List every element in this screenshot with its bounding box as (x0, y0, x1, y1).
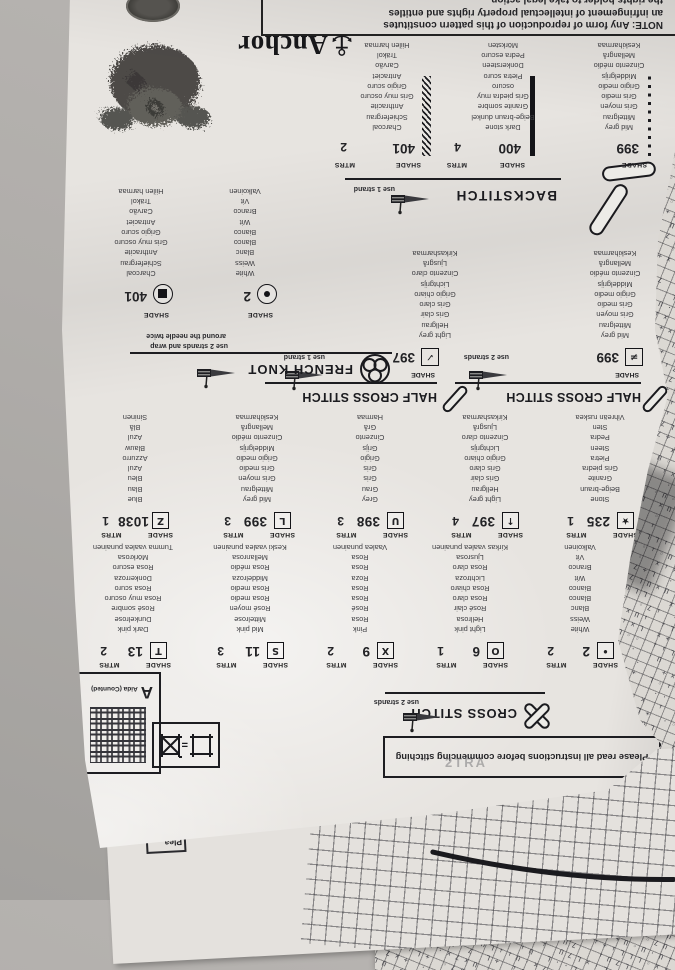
shade-name: Rosa claro (418, 562, 522, 572)
read-instructions-banner: Please read all instructions before comm… (383, 736, 661, 778)
shade-name: Rosa medio (198, 583, 302, 593)
shade-name: Azul (83, 463, 187, 473)
shade-name: Keskiharmaa (563, 39, 675, 49)
shade-name: Weiss (189, 257, 301, 267)
shade-name: Carvão (331, 60, 443, 70)
shade-name: Antraciet (85, 216, 197, 226)
shade-name: Rosa (308, 593, 412, 603)
aida-fabric-swatch-icon (90, 707, 146, 763)
shade-name: oscuro (447, 81, 559, 91)
stitch-symbol-401 (153, 284, 173, 304)
key-column-398: SHADEMTRSU3983GreyGrauGrisGrisGrigioGrij… (318, 411, 422, 538)
needle-icon (195, 366, 235, 380)
half-cross-icon (441, 385, 469, 413)
shade-name: Mittelrose (198, 613, 302, 623)
shade-name: Anthracite (85, 247, 197, 257)
shade-number: 235 (587, 514, 610, 529)
shade-name: Mid grey (563, 122, 675, 132)
shade-mtrs-labels: SHADEMTRS (81, 661, 185, 668)
header-rule (130, 352, 392, 354)
mtrs-value: 3 (224, 514, 231, 528)
mtrs-value: 3 (217, 644, 224, 658)
french-knot-title: FRENCH KNOT (247, 362, 353, 377)
shade-name: Rosa médio (198, 562, 302, 572)
shade-name: Gris moyen (565, 309, 665, 319)
shade-name: Harmaa (318, 411, 422, 421)
shade-name: Rosé sombre (81, 603, 185, 613)
shade-names: Mid greyMittelgrauGris moyenGris medioGr… (565, 247, 665, 340)
shade-number: 400 (498, 141, 521, 156)
shade-row: U3983 (318, 507, 422, 529)
shade-name: Mid pink (198, 624, 302, 634)
mtrs-label: MTRS (546, 661, 566, 668)
stitch-symbol-399: L (274, 512, 291, 529)
shade-name: Roza (308, 572, 412, 582)
header-rule (345, 178, 561, 180)
backstitch-strands: use 1 strand (354, 185, 395, 192)
shade-name: Blanco (528, 593, 632, 603)
shade-name: Stone (548, 494, 652, 504)
shade-mtrs-labels: SHADEMTRS (198, 661, 302, 668)
shade-name: Pedra escuro (447, 50, 559, 60)
shade-name: Weiss (528, 613, 632, 623)
shade-names: WhiteWeissBlancBlancoBiancoWitBrancoVitV… (189, 185, 301, 278)
shade-name: Blue (83, 494, 187, 504)
shade-name: Steen (548, 442, 652, 452)
shade-name: Träkol (85, 196, 197, 206)
needle-icon (467, 368, 507, 382)
anchor-icon: ⚓ (330, 29, 354, 60)
shade-number: 9 (362, 644, 370, 659)
shade-name: Mittelgrau (205, 483, 309, 493)
fabric-name: Aida (Counted) (91, 685, 138, 692)
shade-name: Rosa (308, 562, 412, 572)
stitch-symbol-1038: Z (152, 512, 169, 529)
key-column-397: SHADEMTRS↑3974Light greyHellgrauGris cla… (433, 411, 537, 538)
koala-design-photo (85, 39, 223, 137)
shade-name: Schiefergrau (331, 111, 443, 121)
key-column-2: SHADEMTRS•22WhiteWeissBlancBlancoBiancoW… (528, 541, 632, 668)
shade-number: 399 (616, 141, 639, 156)
shade-name: Antraciet (331, 70, 443, 80)
square-equals-cross-icon: = (158, 730, 214, 760)
shade-number: 397 (392, 350, 415, 365)
mtrs-label: MTRS (566, 531, 586, 538)
shade-name: Grigio chiaro (385, 289, 485, 299)
needle-icon (195, 361, 235, 380)
shade-name: Beige-braun dunkel (447, 111, 559, 121)
shade-name: Azul (83, 432, 187, 442)
shade-name: Vaalea punainen (308, 541, 412, 551)
shade-name: Valkoinen (528, 541, 632, 551)
stitch-symbol-11: S (267, 642, 284, 659)
shade-name: Rosa scuro (81, 583, 185, 593)
shade-name: Wit (189, 216, 301, 226)
shade-names: Light greyHellgrauGris clairGris claroGr… (433, 411, 537, 504)
shade-name: Grigio scuro (331, 81, 443, 91)
shade-name: Rosa (308, 552, 412, 562)
shade-name: White (528, 624, 632, 634)
shade-name: Gris muy oscuro (85, 237, 197, 247)
stitch-symbol-397: ✓ (421, 348, 439, 366)
shade-name: Azzurro (83, 453, 187, 463)
shade-name: Wit (528, 572, 632, 582)
shade-name: Grigio (318, 453, 422, 463)
mtrs-label: MTRS (326, 661, 346, 668)
shade-name: Blanco (189, 237, 301, 247)
shade-mtrs-labels: SHADEMTRS (308, 661, 412, 668)
stitch-symbol-2: • (597, 642, 614, 659)
shade-name: Rosa (308, 613, 412, 623)
shade-name: Blanc (189, 247, 301, 257)
shade-number: 2 (243, 289, 251, 304)
shade-label: SHADE (148, 531, 173, 538)
stitch-symbol-398: U (387, 512, 404, 529)
shade-name: Gris (318, 463, 422, 473)
shade-number: 399 (244, 514, 267, 529)
shade-mtrs-labels: SHADEMTRS (418, 661, 522, 668)
mtrs-label: MTRS (436, 661, 456, 668)
shade-row: ↑3974 (433, 507, 537, 529)
shade-name: Tumma vaalea punainen (81, 541, 185, 551)
shade-name: Gris clair (385, 309, 485, 319)
stitch-symbol-6: O (487, 642, 504, 659)
shade-names: Dark pinkDunkelroseRosé sombreRosa muy o… (81, 541, 185, 634)
shade-name: Middelgrijs (563, 70, 675, 80)
cross-stitch-icon (519, 698, 555, 734)
shade-number: 6 (472, 644, 480, 659)
stitch-symbol-13: T (150, 642, 167, 659)
shade-number: 398 (357, 514, 380, 529)
shade-name: Gris moyen (563, 101, 675, 111)
shade-number: 2 (582, 644, 590, 659)
mtrs-value: 2 (340, 140, 347, 154)
shade-name: Pink (308, 624, 412, 634)
shade-number: 401 (124, 289, 147, 304)
shade-name: Mid grey (565, 330, 665, 340)
mtrs-value: 1 (437, 644, 444, 658)
key-column-11: SHADEMTRSS113Mid pinkMittelroseRosé moye… (198, 541, 302, 668)
shade-name: Bleu (83, 473, 187, 483)
shade-name: Schiefergrau (85, 257, 197, 267)
mtrs-label: MTRS (223, 531, 243, 538)
fabric-label: A Aida (Counted) (81, 682, 153, 702)
shade-name: Rosa (308, 583, 412, 593)
shade-name: Kirkas vaalea punainen (418, 541, 522, 551)
shade-label: SHADE (622, 161, 647, 168)
shade-name: Granite (548, 473, 652, 483)
mtrs-label: MTRS (335, 161, 355, 168)
needle-icon (401, 705, 441, 724)
shade-name: Gris medio (205, 463, 309, 473)
key-column-6: SHADEMTRSO61Light pinkHellrosaRosé clair… (418, 541, 522, 668)
shade-mtrs-labels: SHADEMTRS (205, 531, 309, 538)
french-knot-strands-2: around the needle twice (146, 332, 226, 339)
shade-name: Rosé (308, 603, 412, 613)
shade-label: SHADE (498, 531, 523, 538)
shade-label: SHADE (270, 531, 295, 538)
shade-name: Grigio medio (563, 81, 675, 91)
shade-row: •22 (528, 637, 632, 659)
shade-name: Mellangrå (205, 422, 309, 432)
shade-name: Mörkrosa (81, 552, 185, 562)
shade-row: S113 (198, 637, 302, 659)
shade-number: 1038 (118, 514, 149, 529)
backstitch-sample-icon (581, 156, 661, 242)
shade-label: SHADE (593, 661, 618, 668)
shade-label: SHADE (383, 531, 408, 538)
shade-name: Grau (318, 483, 422, 493)
needle-icon (389, 192, 429, 206)
note-line: an infringement of intellectual property… (263, 5, 663, 17)
shade-name: Bianco (528, 583, 632, 593)
shade-names: WhiteWeissBlancBlancoBiancoWitBrancoVitV… (528, 541, 632, 634)
backstitch-title: BACKSTITCH (455, 188, 557, 203)
shade-name: Keski vaalea punainen (198, 541, 302, 551)
shade-name: Blanc (528, 603, 632, 613)
shade-name: Middelgrijs (565, 278, 665, 288)
shade-name: Beige-braun (548, 483, 652, 493)
header-rule (455, 382, 641, 384)
shade-name: Rosa escuro (81, 562, 185, 572)
shade-name: Gris medio (563, 91, 675, 101)
shade-name: Grigio medio (205, 453, 309, 463)
mtrs-label: MTRS (216, 661, 236, 668)
shade-name: Blau (83, 483, 187, 493)
shade-name: Dark pink (81, 624, 185, 634)
shade-name: Valkoinen (189, 185, 301, 195)
shade-row: ★2351 (548, 507, 652, 529)
shade-name: Light grey (433, 494, 537, 504)
shade-name: Grey (318, 494, 422, 504)
shade-names: Light pinkHellrosaRosé clairRosa claroRo… (418, 541, 522, 634)
banner-text: Please read all instructions before comm… (396, 752, 649, 762)
mtrs-label: MTRS (101, 531, 121, 538)
shade-name: Light pink (418, 624, 522, 634)
mtrs-value: 4 (454, 140, 461, 154)
stitch-symbol-399: ≠ (625, 348, 643, 366)
shade-name: Pietra (548, 453, 652, 463)
shade-name: Dunkelrose (81, 613, 185, 623)
fabric-box: A Aida (Counted) (75, 672, 161, 774)
shade-name: Sininen (83, 411, 187, 421)
shade-name: Sten (548, 422, 652, 432)
half-cross-title-2: HALF CROSS STITCH (302, 390, 437, 404)
shade-name: Cinzento médio (563, 60, 675, 70)
shade-mtrs-labels: SHADEMTRS (318, 531, 422, 538)
shade-name: Mid grey (205, 494, 309, 504)
shade-name: Light grey (385, 330, 485, 340)
shade-row: X92 (308, 637, 412, 659)
shade-name: Cinzento claro (433, 432, 537, 442)
shade-names: Light greyHellgrauGris clairGris claroGr… (385, 247, 485, 340)
half-cross-strands-1: use 2 strands (464, 353, 509, 360)
shade-name: Lichtroza (418, 572, 522, 582)
shade-name: Gris muy oscuro (331, 91, 443, 101)
photo-scene: U+◦7◦·↓◦+U◦ Lx+ U↓ x xU◦x LUx7↓L7Lxx+ 7+… (0, 0, 675, 900)
shade-names: Dark stoneBeige-braun dunkelGranite somb… (447, 39, 559, 132)
shade-name: White (189, 268, 301, 278)
shade-row: O61 (418, 637, 522, 659)
svg-text:=: = (182, 738, 188, 750)
needle-icon (389, 187, 429, 206)
shade-name: Mittelgrau (563, 111, 675, 121)
shade-name: Rosa muy oscuro (81, 593, 185, 603)
shade-name: Mellangrå (565, 258, 665, 268)
brand-name: Anchor (238, 29, 328, 60)
shade-name: Cinzento médio (205, 432, 309, 442)
shade-name: Gris piedra (548, 463, 652, 473)
shade-names: PinkRosaRoséRosaRosaRozaRosaRosaVaalea p… (308, 541, 412, 634)
shade-name: Mörksten (447, 39, 559, 49)
mtrs-label: MTRS (451, 531, 471, 538)
shade-name: Charcoal (331, 122, 443, 132)
mtrs-value: 2 (327, 644, 334, 658)
shade-row: T132 (81, 637, 185, 659)
print-bleed-text: 2TRA (445, 755, 487, 770)
shade-name: Ljusgrå (433, 422, 537, 432)
mtrs-label: MTRS (99, 661, 119, 668)
stitch-symbol-9: X (377, 642, 394, 659)
shade-name: Cinzento claro (385, 268, 485, 278)
shade-names: Mid pinkMittelroseRosé moyenRosa medioRo… (198, 541, 302, 634)
shade-name: Mellangrå (563, 50, 675, 60)
shade-name: Blå (83, 422, 187, 432)
stitch-legend: = (152, 722, 220, 768)
shade-name: Anthracite (331, 101, 443, 111)
shade-row: L3993 (205, 507, 309, 529)
shade-label: SHADE (396, 161, 421, 168)
shade-name: Hiilen harmaa (85, 185, 197, 195)
shade-number: 399 (596, 350, 619, 365)
shade-name: Gris piedra muy (447, 91, 559, 101)
shade-name: Grå (318, 422, 422, 432)
shade-label: SHADE (263, 661, 288, 668)
shade-name: Cinzento médio (565, 268, 665, 278)
shade-label: SHADE (483, 661, 508, 668)
header-rule (265, 382, 437, 384)
half-cross-strands-2: use 1 strand (284, 353, 325, 360)
key-column-9: SHADEMTRSX92PinkRosaRoséRosaRosaRozaRosa… (308, 541, 412, 668)
shade-name: Rosa claro (418, 593, 522, 603)
symbol-inner (159, 290, 168, 299)
shade-name: Lichtgrijs (385, 278, 485, 288)
shade-name: Rosé clair (418, 603, 522, 613)
shade-name: Mellanrosa (198, 552, 302, 562)
shade-name: Rosa medio (198, 593, 302, 603)
shade-name: Bianco (189, 227, 301, 237)
shade-name: Keskiharmaa (205, 411, 309, 421)
shade-name: Ljusrosa (418, 552, 522, 562)
shade-name: Pedra (548, 432, 652, 442)
french-knot-icon (358, 352, 392, 386)
shade-names: StoneBeige-braunGraniteGris piedraPietra… (548, 411, 652, 504)
shade-name: Kirkasharmaa (385, 247, 485, 257)
shade-number: 11 (245, 644, 260, 659)
fabric-letter: A (141, 682, 153, 702)
shade-number: 397 (472, 514, 495, 529)
shade-name: Dark stone (447, 122, 559, 132)
shade-name: Vihreän ruskea (548, 411, 652, 421)
shade-label: SHADE (411, 371, 435, 378)
shade-name: Hellgrau (433, 483, 537, 493)
shade-names: GreyGrauGrisGrisGrigioGrijsCinzentoGråHa… (318, 411, 422, 504)
shade-label: SHADE (500, 161, 525, 168)
shade-name: Grigio scuro (85, 227, 197, 237)
shade-label: SHADE (373, 661, 398, 668)
needle-icon (467, 363, 507, 382)
oval-stamp (126, 0, 180, 22)
shade-name: Gris clair (433, 473, 537, 483)
mtrs-value: 1 (567, 514, 574, 528)
shade-label: SHADE (248, 311, 273, 318)
shade-name: Gris moyen (205, 473, 309, 483)
shade-name: Lichtgrijs (433, 442, 537, 452)
shade-name: Donkersteen (447, 60, 559, 70)
header-rule (385, 692, 545, 694)
shade-name: Blauw (83, 442, 187, 452)
shade-name: Vit (189, 196, 301, 206)
shade-name: Keskiharmaa (565, 247, 665, 257)
key-column-235: SHADEMTRS★2351StoneBeige-braunGraniteGri… (548, 411, 652, 538)
instruction-sheet: Please read all instructions before comm… (0, 0, 675, 900)
shade-name: Rosa chiaro (418, 583, 522, 593)
symbol-inner (264, 291, 270, 297)
mtrs-value: 2 (547, 644, 554, 658)
shade-names: Mid greyMittelgrauGris moyenGris medioGr… (205, 411, 309, 504)
shade-label: SHADE (146, 661, 171, 668)
brand-logo: ⚓ Anchor (238, 29, 354, 60)
shade-names: Mid greyMittelgrauGris moyenGris medioGr… (563, 39, 675, 132)
stitch-symbol-235: ★ (617, 512, 634, 529)
shade-name: Donkerroza (81, 572, 185, 582)
shade-number: 13 (127, 644, 143, 659)
shade-name: Middelgrijs (205, 442, 309, 452)
stitch-symbol-2 (257, 284, 277, 304)
shade-mtrs-labels: SHADEMTRS (83, 531, 187, 538)
mtrs-value: 2 (100, 644, 107, 658)
shade-label: SHADE (615, 371, 639, 378)
half-cross-title-1: HALF CROSS STITCH (506, 390, 641, 404)
shade-name: Mittelgrau (565, 319, 665, 329)
mtrs-label: MTRS (336, 531, 356, 538)
shade-name: Pietra scuro (447, 70, 559, 80)
shade-name: Grigio medio (565, 289, 665, 299)
shade-mtrs-labels: SHADEMTRS (433, 531, 537, 538)
mtrs-value: 1 (102, 514, 109, 528)
mtrs-label: MTRS (447, 161, 467, 168)
shade-name: Gris (318, 473, 422, 483)
shade-row: Z10381 (83, 507, 187, 529)
shade-name: Carvão (85, 206, 197, 216)
key-column-399: SHADEMTRSL3993Mid greyMittelgrauGris moy… (205, 411, 309, 538)
shade-name: Gris claro (385, 299, 485, 309)
shade-name: Vit (528, 552, 632, 562)
mtrs-value: 3 (337, 514, 344, 528)
shade-name: Branco (189, 206, 301, 216)
needle-icon (401, 710, 441, 724)
shade-name: Hellgrau (385, 319, 485, 329)
french-knot-strands-1: use 2 strands and wrap (150, 342, 228, 349)
stitch-symbol-397: ↑ (502, 512, 519, 529)
shade-name: Middelroza (198, 572, 302, 582)
shade-label: SHADE (144, 311, 169, 318)
cross-stitch-strands: use 2 strands (374, 698, 419, 705)
shade-name: Grigio chiaro (433, 453, 537, 463)
shade-name: Gris claro (433, 463, 537, 473)
shade-name: Rosé moyen (198, 603, 302, 613)
mtrs-value: 4 (452, 514, 459, 528)
